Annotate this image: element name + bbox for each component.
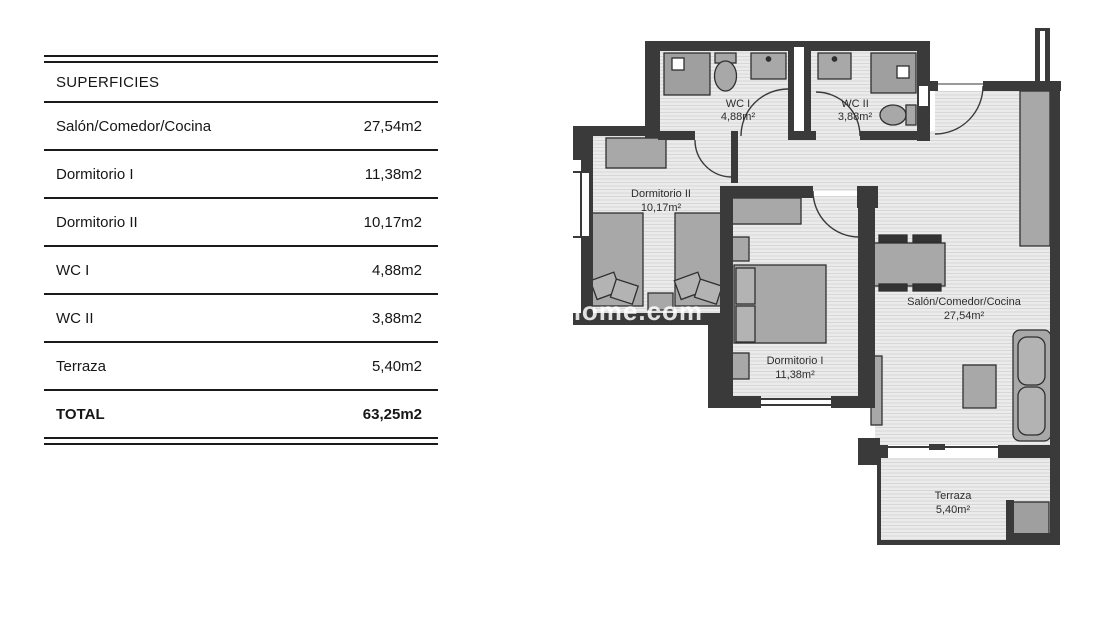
sink-icon: [818, 53, 851, 79]
row-label: Salón/Comedor/Cocina: [56, 118, 211, 135]
table-total-row: TOTAL 63,25m2: [44, 391, 438, 437]
total-value: 63,25m2: [363, 406, 422, 423]
room-name: Terraza: [935, 490, 973, 502]
coffee-table-icon: [963, 365, 996, 408]
room-name: WC I: [726, 98, 750, 110]
sofa-icon: [1013, 330, 1051, 441]
room-name: WC II: [841, 98, 869, 110]
room-area: 4,88m²: [721, 111, 756, 123]
row-label: WC II: [56, 310, 94, 327]
surfaces-table-header: SUPERFICIES: [44, 63, 438, 103]
table-row: Salón/Comedor/Cocina 27,54m2: [44, 103, 438, 151]
dining-table-icon: [871, 235, 945, 291]
row-value: 10,17m2: [364, 214, 422, 231]
room-name: Dormitorio I: [767, 355, 824, 367]
kitchen-counter-icon: [1020, 91, 1050, 246]
room-name: Salón/Comedor/Cocina: [907, 296, 1022, 308]
table-row: Dormitorio II 10,17m2: [44, 199, 438, 247]
row-value: 11,38m2: [365, 166, 422, 183]
room-area: 3,88m²: [838, 111, 873, 123]
single-bed-icon: [590, 213, 643, 306]
double-bed-icon: [734, 265, 826, 343]
row-value: 27,54m2: [364, 118, 422, 135]
surfaces-table: SUPERFICIES Salón/Comedor/Cocina 27,54m2…: [44, 55, 438, 445]
table-row: Terraza 5,40m2: [44, 343, 438, 391]
room-area: 11,38m²: [775, 369, 815, 381]
room-area: 27,54m²: [944, 310, 985, 322]
row-value: 3,88m2: [372, 310, 422, 327]
row-label: Dormitorio II: [56, 214, 138, 231]
row-label: WC I: [56, 262, 89, 279]
room-area: 10,17m²: [641, 202, 682, 214]
table-bottom-line-2: [44, 443, 438, 445]
room-area: 5,40m²: [936, 504, 971, 516]
table-row: Dormitorio I 11,38m2: [44, 151, 438, 199]
total-label: TOTAL: [56, 406, 105, 423]
wardrobe-icon: [731, 198, 801, 224]
single-bed-icon: [674, 213, 723, 306]
shower-icon: [871, 53, 916, 93]
toilet-icon: [715, 53, 737, 91]
table-row: WC I 4,88m2: [44, 247, 438, 295]
floorplan-page: SUPERFICIES Salón/Comedor/Cocina 27,54m2…: [0, 0, 1110, 626]
wardrobe-icon: [606, 138, 666, 168]
row-label: Dormitorio I: [56, 166, 134, 183]
row-value: 4,88m2: [372, 262, 422, 279]
row-value: 5,40m2: [372, 358, 422, 375]
sink-icon: [751, 53, 786, 79]
surfaces-title: SUPERFICIES: [56, 74, 159, 91]
room-name: Dormitorio II: [631, 188, 691, 200]
floorplan-drawing: WC I 4,88m² WC II 3,88m² Dormitorio II 1…: [573, 28, 1071, 548]
row-label: Terraza: [56, 358, 106, 375]
storage-unit-icon: [1013, 502, 1049, 538]
table-row: WC II 3,88m2: [44, 295, 438, 343]
watermark-text: home.com: [573, 296, 703, 326]
toilet-icon: [880, 105, 916, 125]
shower-icon: [664, 53, 710, 95]
